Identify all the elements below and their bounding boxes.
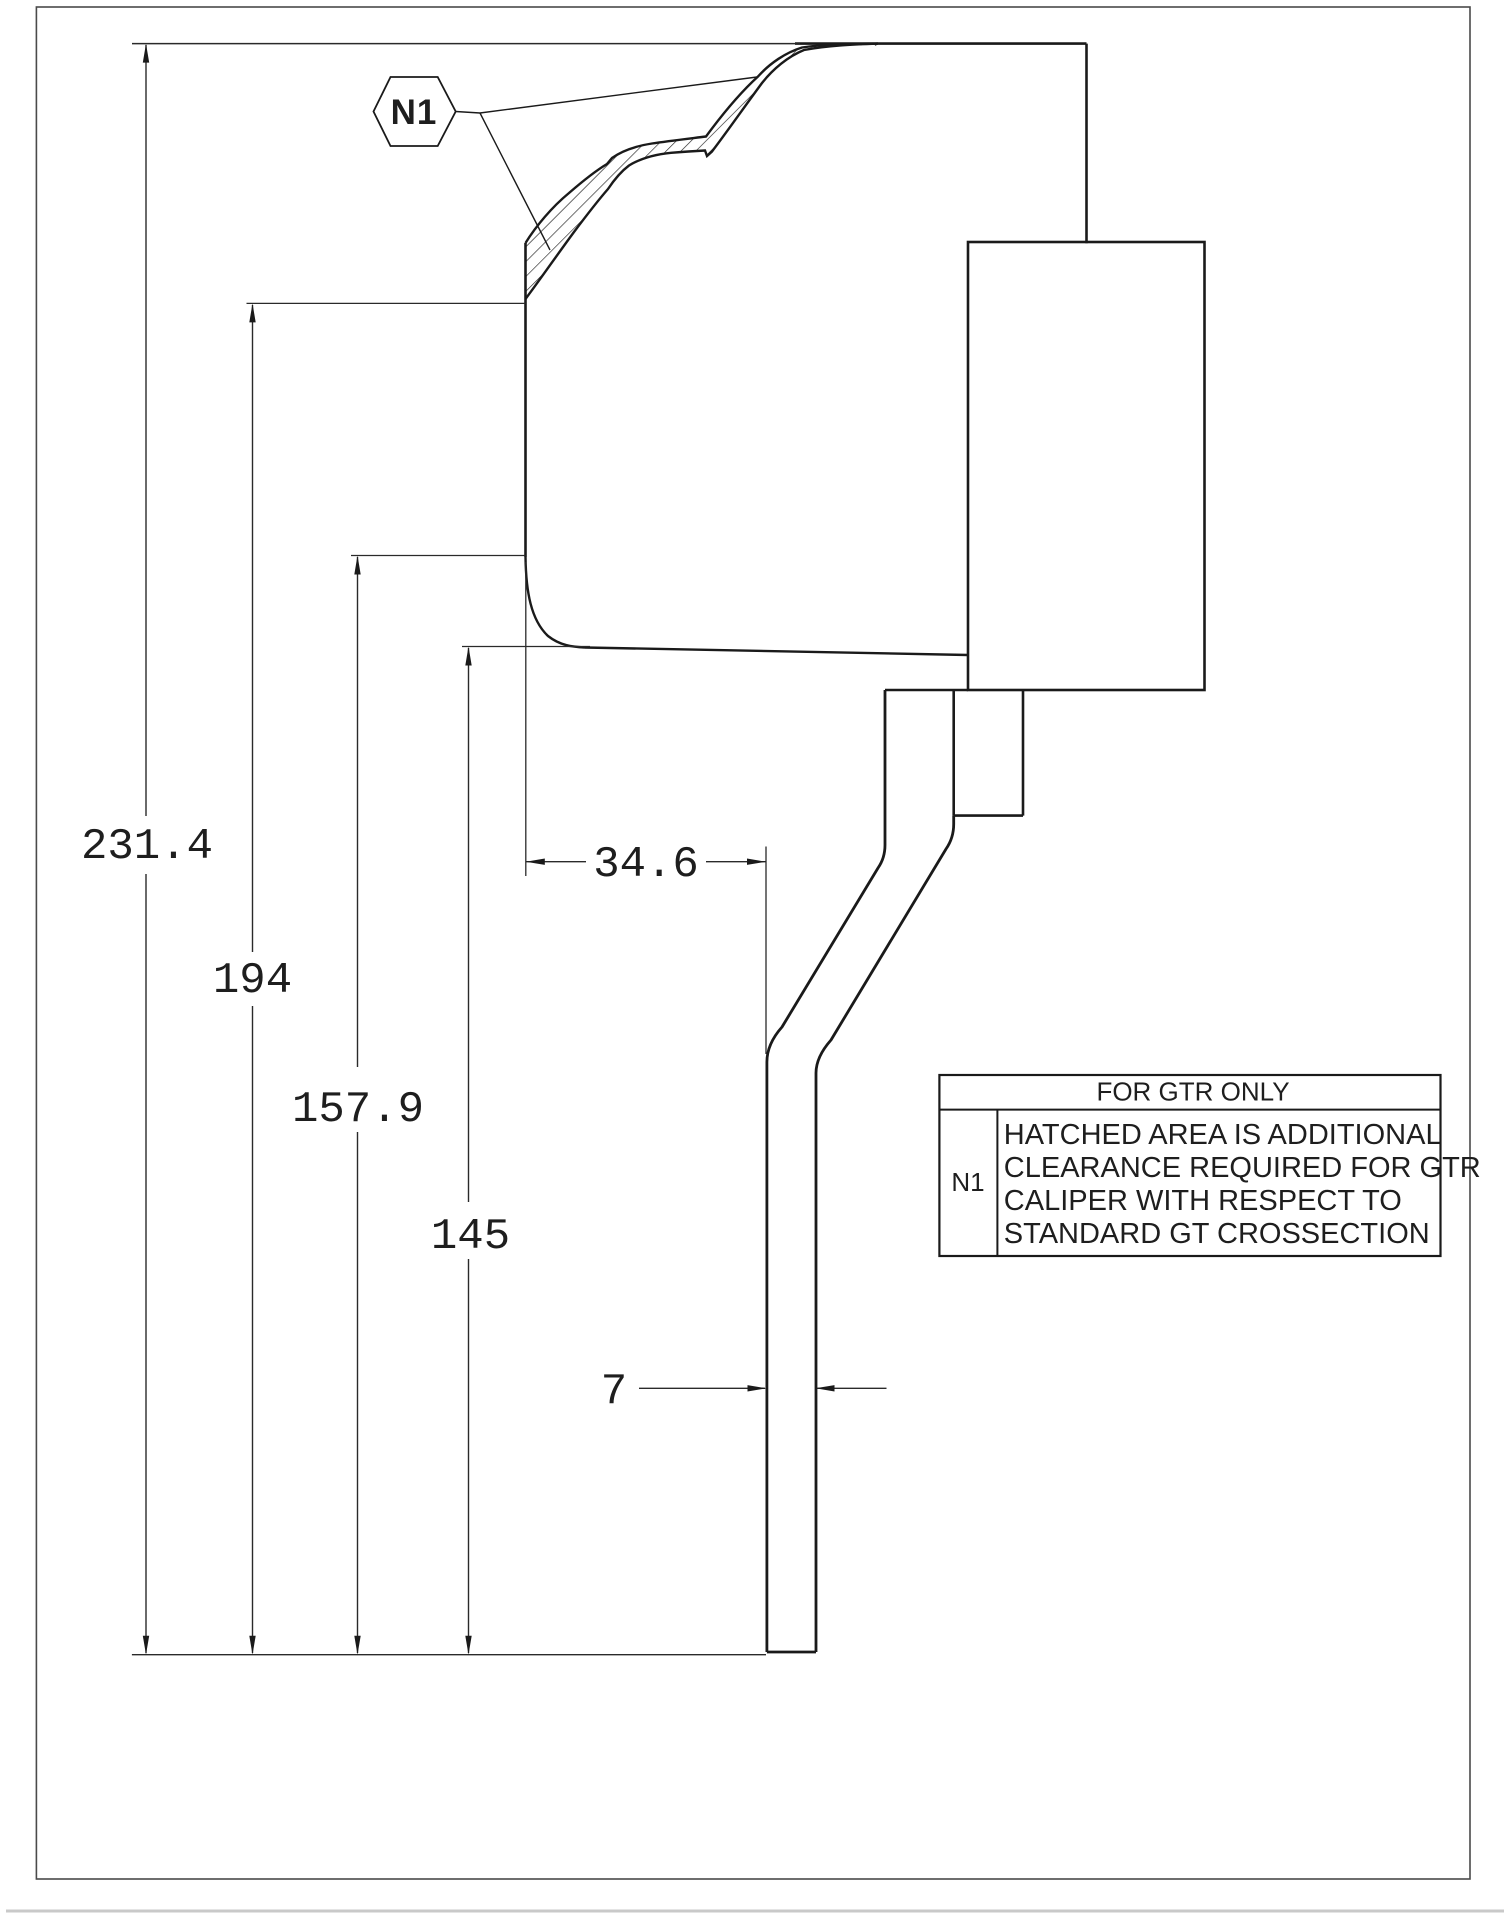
svg-text:STANDARD GT CROSSECTION: STANDARD GT CROSSECTION bbox=[1004, 1218, 1430, 1250]
svg-text:231.4: 231.4 bbox=[81, 822, 213, 872]
svg-text:FOR GTR ONLY: FOR GTR ONLY bbox=[1096, 1077, 1289, 1107]
svg-text:34.6: 34.6 bbox=[593, 840, 699, 890]
svg-text:157.9: 157.9 bbox=[292, 1085, 424, 1135]
svg-text:194: 194 bbox=[213, 956, 292, 1006]
svg-text:CALIPER WITH RESPECT TO: CALIPER WITH RESPECT TO bbox=[1004, 1185, 1402, 1217]
svg-text:N1: N1 bbox=[951, 1167, 984, 1197]
svg-text:145: 145 bbox=[431, 1212, 510, 1262]
svg-text:7: 7 bbox=[601, 1367, 627, 1417]
svg-text:HATCHED AREA IS ADDITIONAL: HATCHED AREA IS ADDITIONAL bbox=[1004, 1119, 1442, 1151]
svg-text:CLEARANCE REQUIRED FOR GTR: CLEARANCE REQUIRED FOR GTR bbox=[1004, 1152, 1481, 1184]
svg-text:N1: N1 bbox=[391, 93, 438, 132]
